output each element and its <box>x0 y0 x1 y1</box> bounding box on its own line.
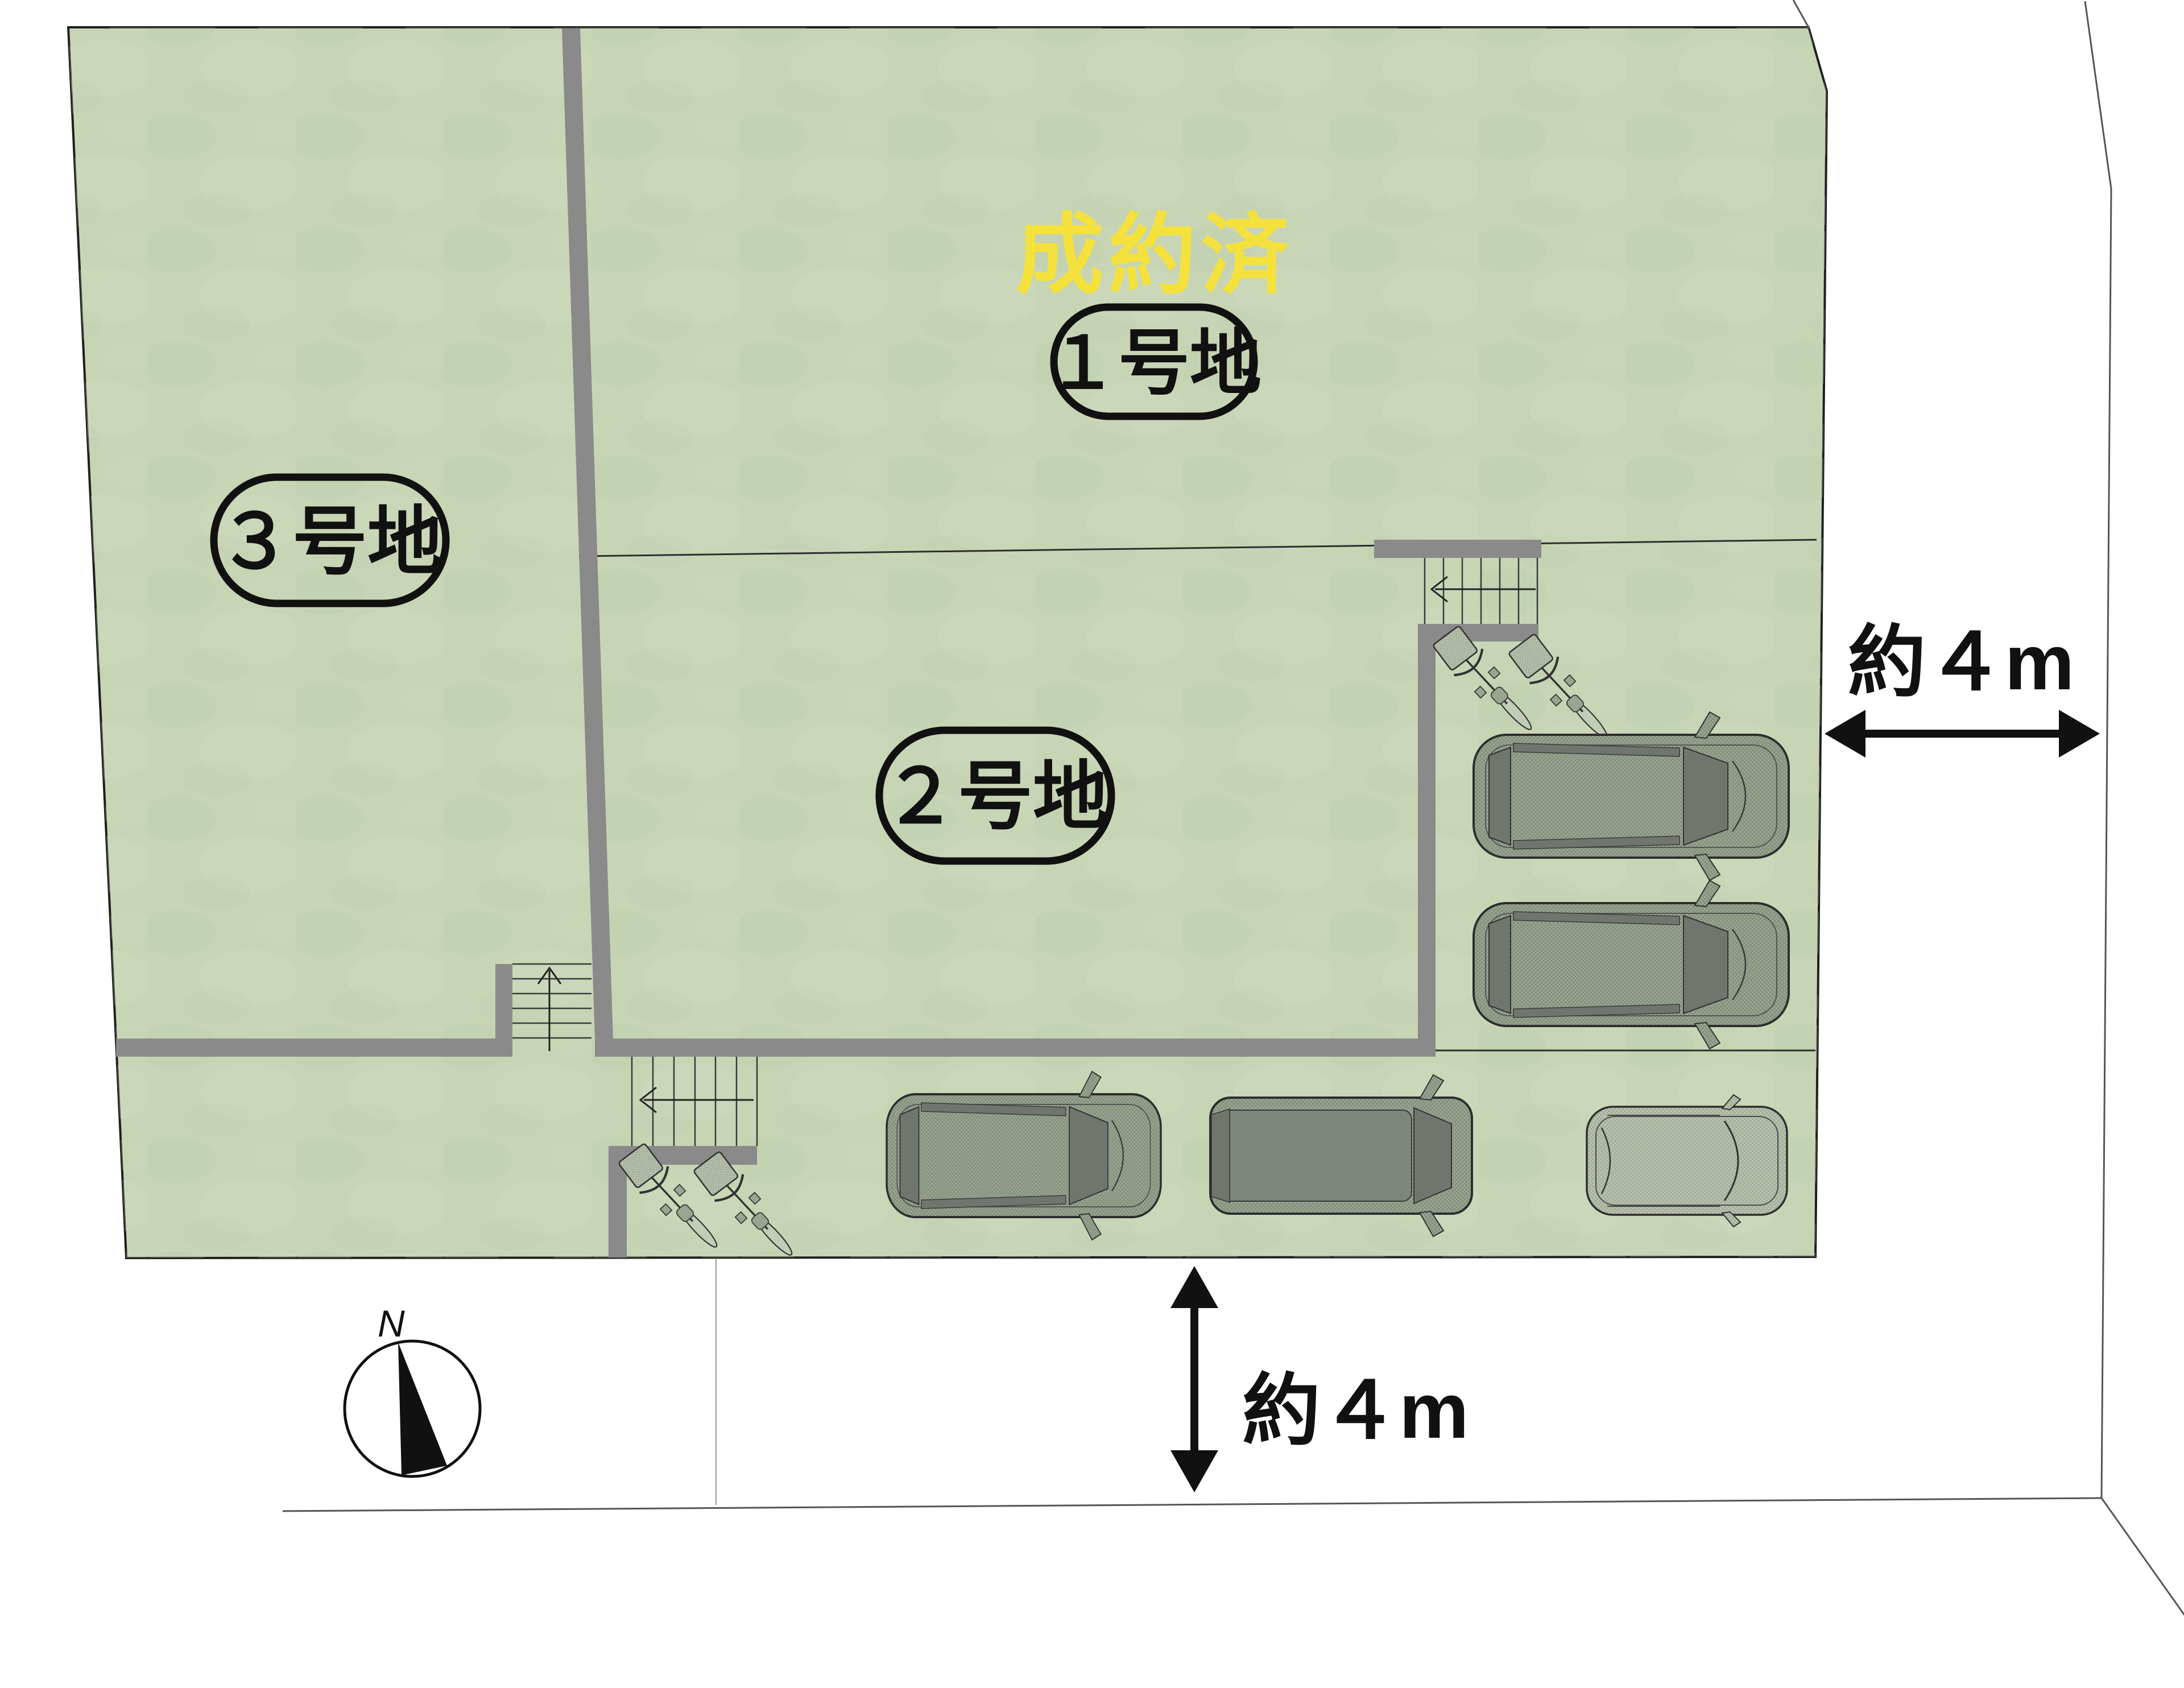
upper-right-top-wall <box>1374 540 1541 558</box>
car-south-left <box>887 1071 1161 1240</box>
site <box>68 27 1827 1258</box>
car-east-top <box>1474 712 1789 880</box>
site-plan-canvas: 成約済 １号地 ２号地 ３号地 約４m 約４m N <box>0 0 2184 1688</box>
site-area-texture <box>68 27 1827 1258</box>
car-south-middle <box>1210 1075 1472 1236</box>
car-east-bottom <box>1474 880 1789 1049</box>
east-vertical-wall <box>1418 642 1436 1057</box>
dimension-east-shaft <box>1861 730 2063 738</box>
car-south-right <box>1587 1095 1787 1227</box>
sold-status-banner: 成約済 <box>1016 206 1294 304</box>
dimension-south-shaft <box>1190 1304 1198 1455</box>
lot-3-label: ３号地 <box>217 500 442 584</box>
east-retaining-wall <box>595 1039 1436 1057</box>
site-plan-page: 成約済 １号地 ２号地 ３号地 約４m 約４m N <box>0 0 2184 1688</box>
lot-1-label: １号地 <box>1046 323 1261 403</box>
dimension-south-label: 約４m <box>1242 1367 1469 1455</box>
dimension-east-label: 約４m <box>1848 619 2075 706</box>
compass-north-label: N <box>378 1302 405 1344</box>
dimension-east-road: 約４m <box>1825 619 2100 758</box>
west-retaining-wall <box>116 1039 512 1057</box>
lot-2-label: ２号地 <box>883 755 1108 838</box>
middle-stairs-west-stub-wall <box>495 964 512 1057</box>
lot-1-badge: １号地 <box>1046 307 1261 416</box>
lower-stairs-vertical-wall <box>609 1165 627 1257</box>
upper-right-stairs-bottom-wall <box>1418 624 1538 642</box>
